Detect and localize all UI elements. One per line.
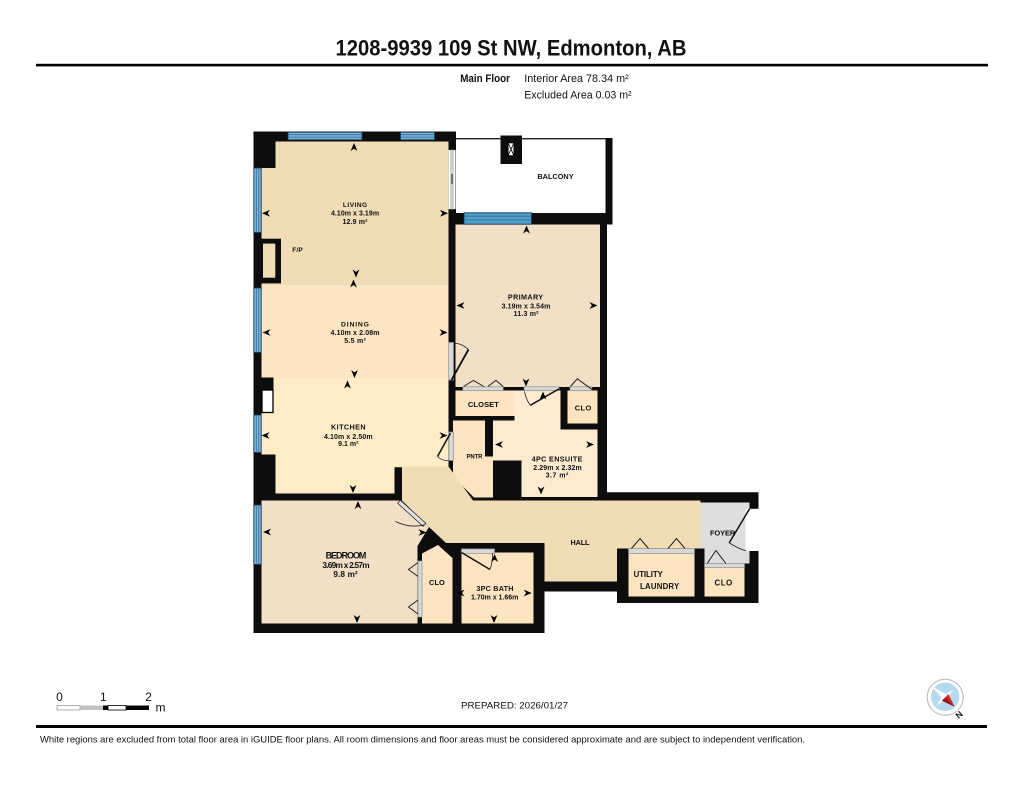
- svg-text:1.70m x 1.66m: 1.70m x 1.66m: [471, 595, 518, 602]
- svg-text:2: 2: [145, 690, 152, 704]
- svg-text:FOYER: FOYER: [710, 528, 736, 537]
- svg-text:1208-9939 109 St NW, Edmonton,: 1208-9939 109 St NW, Edmonton, AB: [336, 35, 687, 60]
- svg-text:4.10m x 2.50m: 4.10m x 2.50m: [324, 434, 373, 441]
- svg-text:UTILITY: UTILITY: [634, 570, 664, 579]
- svg-text:KITCHEN: KITCHEN: [331, 423, 366, 432]
- svg-text:3.19m x 3.54m: 3.19m x 3.54m: [502, 304, 551, 311]
- svg-text:12.9 m²: 12.9 m²: [343, 219, 369, 226]
- svg-text:4PC ENSUITE: 4PC ENSUITE: [532, 454, 583, 463]
- svg-text:11.3 m²: 11.3 m²: [514, 311, 540, 318]
- svg-text:HALL: HALL: [570, 538, 590, 547]
- svg-text:9.8 m²: 9.8 m²: [333, 569, 358, 579]
- svg-text:3.7 m²: 3.7 m²: [546, 473, 569, 480]
- svg-text:PRIMARY: PRIMARY: [508, 293, 543, 302]
- svg-text:BALCONY: BALCONY: [537, 172, 573, 181]
- svg-text:CLOSET: CLOSET: [468, 400, 499, 409]
- svg-text:9.1 m²: 9.1 m²: [338, 441, 359, 448]
- svg-text:5.5 m²: 5.5 m²: [344, 338, 366, 345]
- svg-text:Main Floor: Main Floor: [460, 73, 510, 85]
- svg-text:Interior Area 78.34 m²: Interior Area 78.34 m²: [524, 73, 629, 85]
- svg-text:DINING: DINING: [341, 322, 369, 329]
- svg-text:CLO: CLO: [575, 404, 592, 413]
- svg-text:1: 1: [100, 690, 107, 704]
- svg-text:CLO: CLO: [714, 578, 732, 587]
- svg-text:LIVING: LIVING: [343, 202, 367, 209]
- svg-text:LAUNDRY: LAUNDRY: [640, 582, 680, 591]
- svg-text:4.10m x 2.08m: 4.10m x 2.08m: [331, 330, 380, 337]
- svg-text:2.29m x 2.32m: 2.29m x 2.32m: [533, 465, 581, 472]
- svg-text:3PC BATH: 3PC BATH: [476, 584, 513, 593]
- svg-text:4.10m x 3.19m: 4.10m x 3.19m: [331, 211, 379, 218]
- svg-text:CLO: CLO: [429, 578, 445, 587]
- svg-text:Excluded Area 0.03 m²: Excluded Area 0.03 m²: [524, 90, 632, 102]
- svg-text:m: m: [155, 700, 165, 714]
- svg-text:White regions are excluded fro: White regions are excluded from total fl…: [40, 734, 805, 744]
- svg-text:0: 0: [56, 690, 63, 704]
- svg-text:PNTR: PNTR: [466, 454, 483, 460]
- svg-text:PREPARED: 2026/01/27: PREPARED: 2026/01/27: [461, 700, 568, 711]
- svg-text:F/P: F/P: [292, 247, 303, 254]
